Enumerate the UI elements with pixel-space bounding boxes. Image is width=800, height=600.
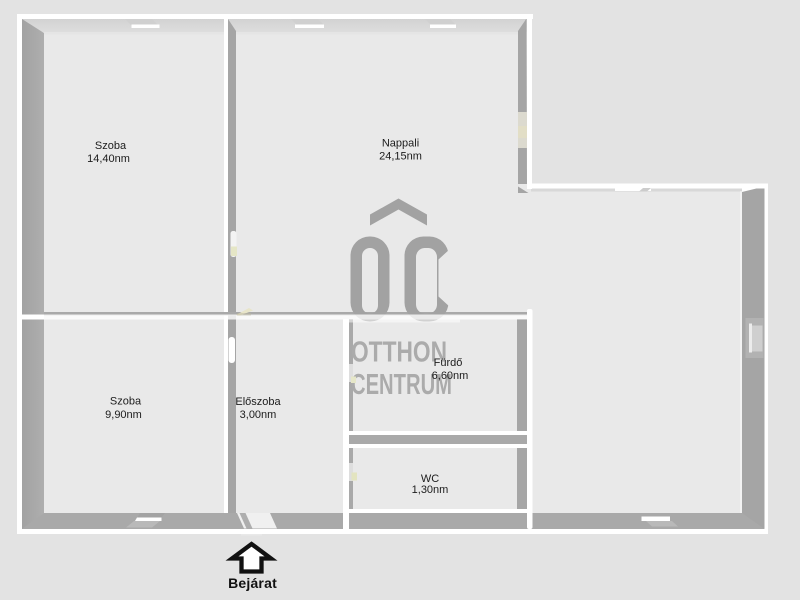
svg-text:Szoba: Szoba [110, 396, 142, 408]
svg-text:6,60nm: 6,60nm [432, 370, 469, 382]
svg-text:Fürdő: Fürdő [434, 357, 463, 369]
svg-text:Előszoba: Előszoba [235, 396, 281, 408]
svg-text:Nappali: Nappali [382, 138, 419, 150]
svg-text:24,15nm: 24,15nm [379, 151, 422, 163]
svg-text:9,90nm: 9,90nm [105, 409, 142, 421]
svg-text:Bejárat: Bejárat [228, 575, 277, 591]
svg-text:1,30nm: 1,30nm [412, 484, 449, 496]
svg-text:14,40nm: 14,40nm [87, 153, 130, 165]
svg-text:3,00nm: 3,00nm [240, 409, 277, 421]
svg-text:OTTHON: OTTHON [351, 337, 447, 369]
svg-text:Szoba: Szoba [95, 140, 127, 152]
